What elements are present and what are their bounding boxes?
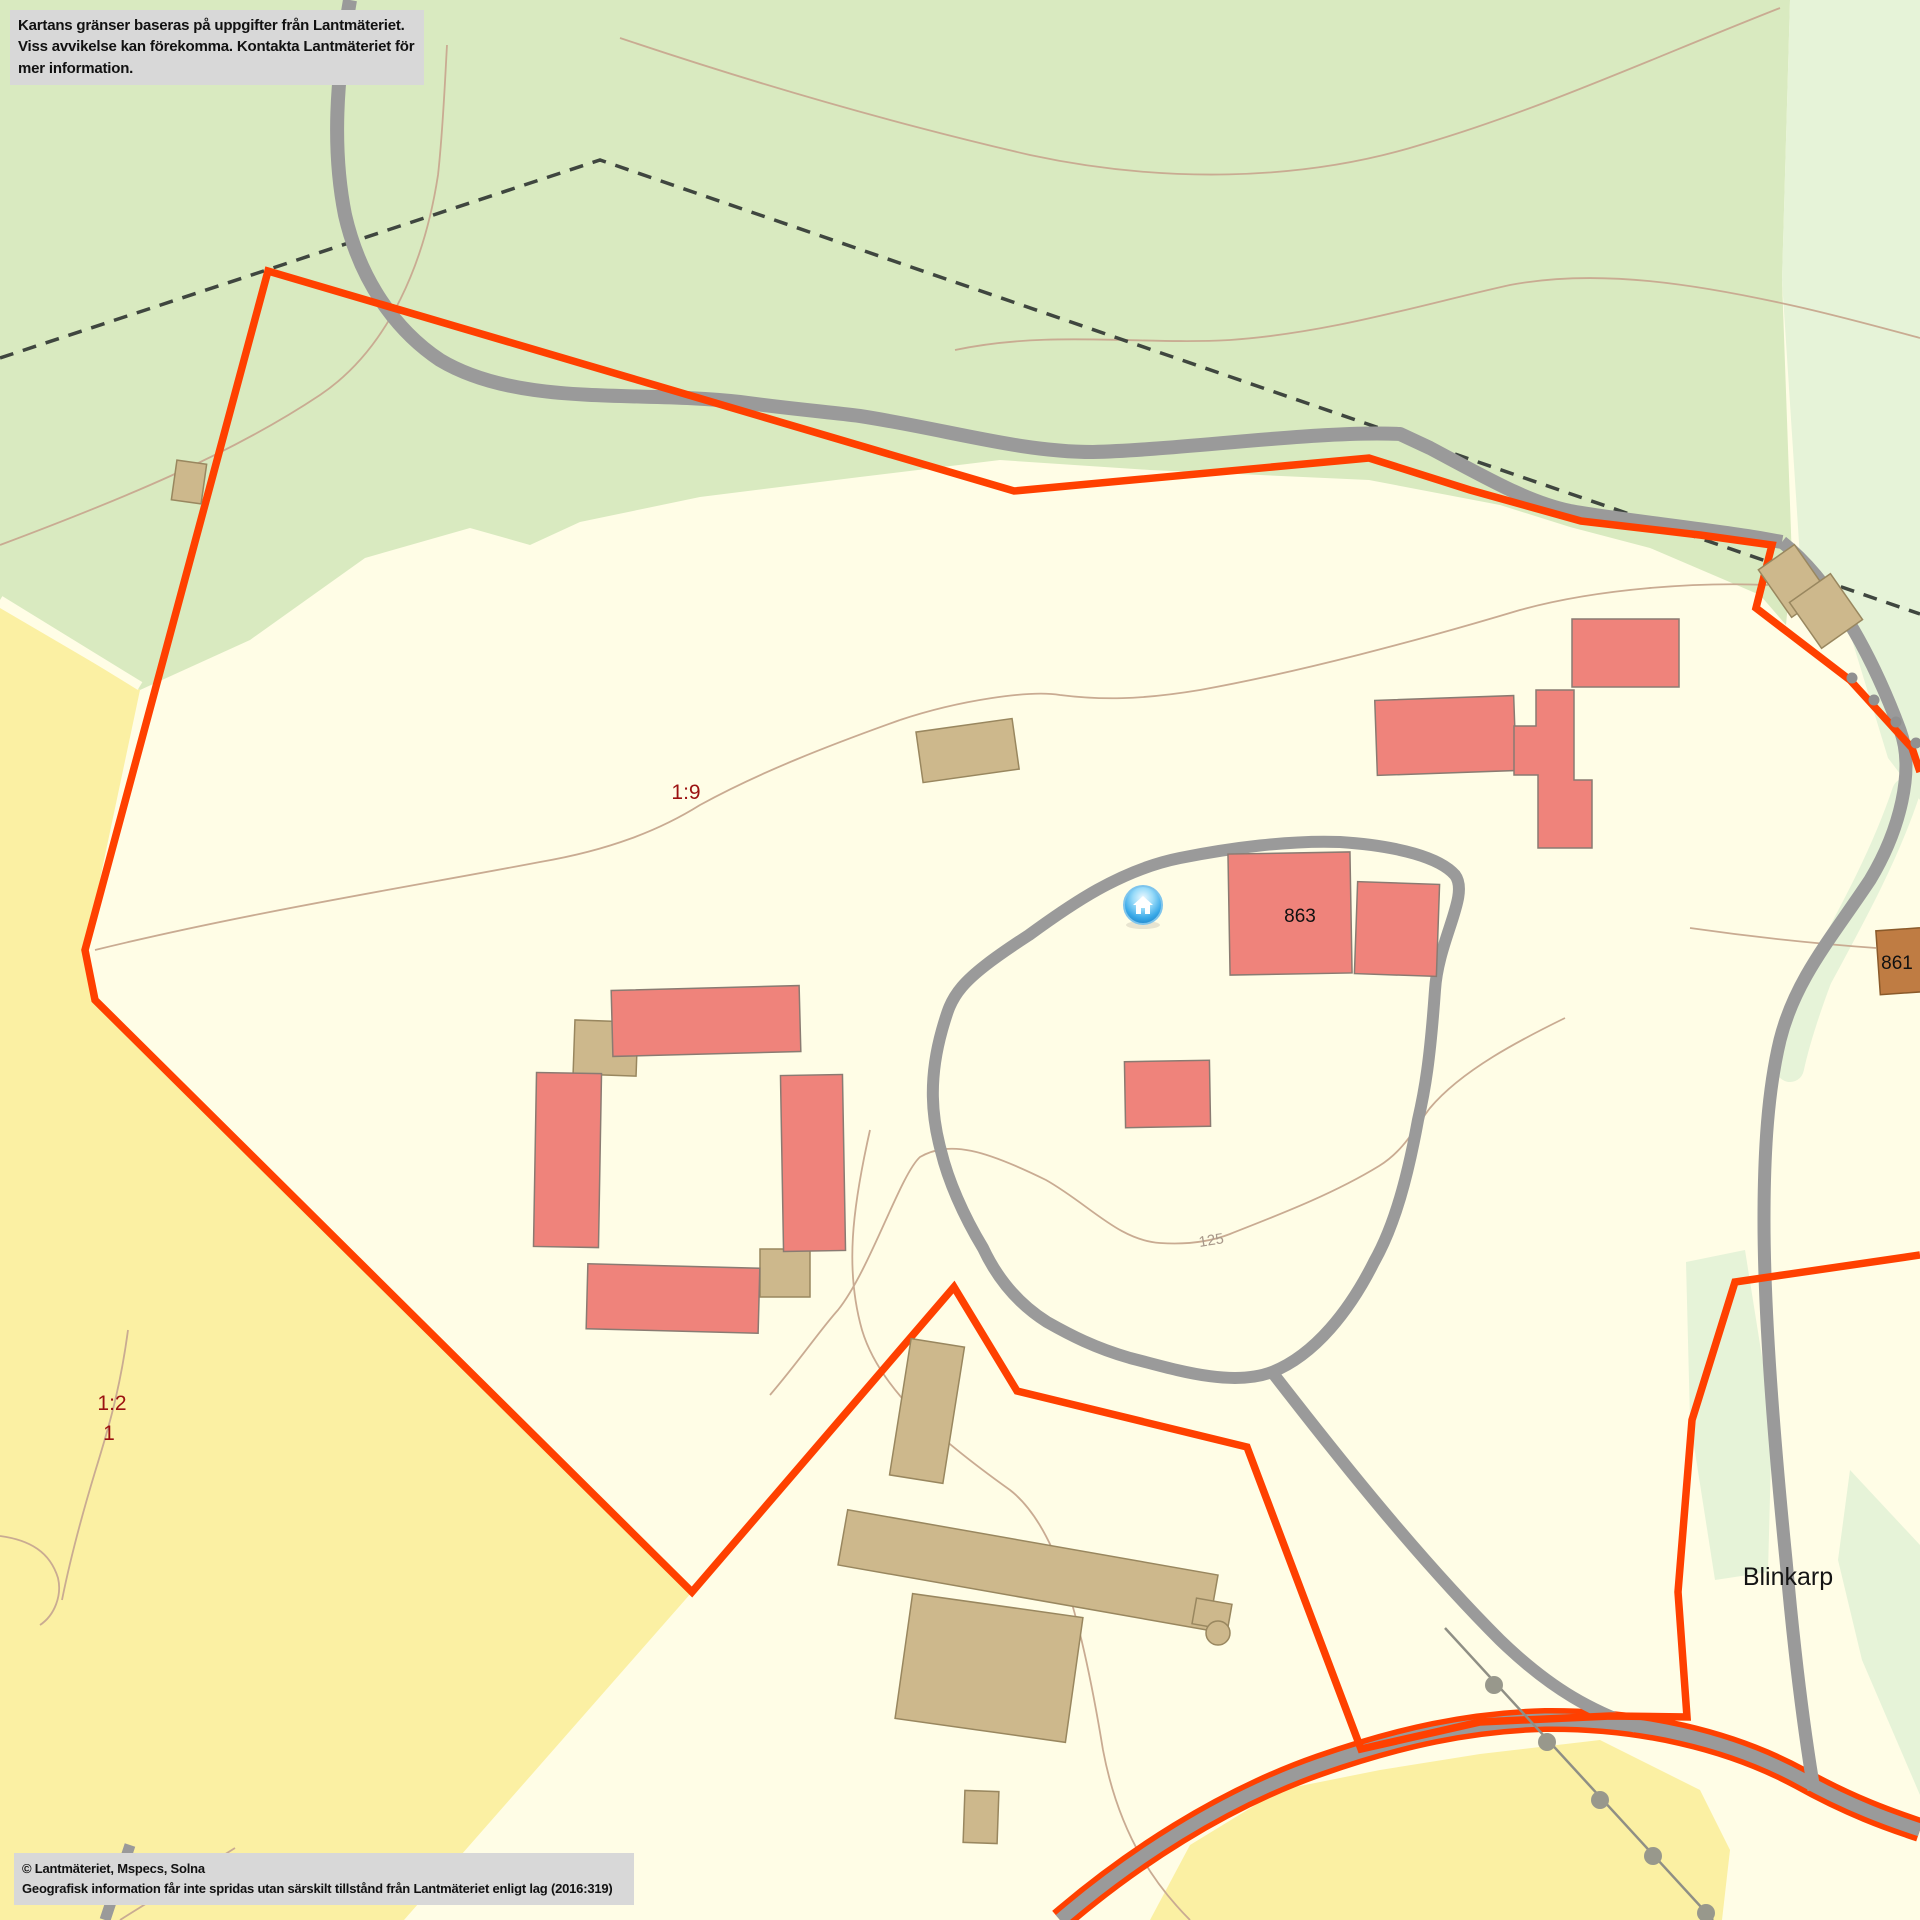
map-canvas[interactable]: 1:91:21863861125Blinkarp <box>0 0 1920 1920</box>
home-marker[interactable] <box>1124 886 1162 929</box>
map-disclaimer-notice: Kartans gränser baseras på uppgifter frå… <box>10 10 424 85</box>
attribution-line-2: Geografisk information får inte spridas … <box>22 1879 626 1899</box>
parcel-1: 1 <box>103 1422 115 1445</box>
parcel-1-2: 1:2 <box>97 1392 126 1415</box>
notice-line-2: Viss avvikelse kan förekomma. Kontakta L… <box>18 36 416 79</box>
parcel-1-9: 1:9 <box>671 781 700 804</box>
building-863: 863 <box>1284 906 1316 927</box>
attribution-line-1: © Lantmäteriet, Mspecs, Solna <box>22 1859 626 1879</box>
map-viewport[interactable]: 1:91:21863861125Blinkarp Kartans gränser… <box>0 0 1920 1920</box>
building-861: 861 <box>1881 953 1913 974</box>
notice-line-1: Kartans gränser baseras på uppgifter frå… <box>18 15 416 36</box>
place-blinkarp: Blinkarp <box>1743 1563 1833 1591</box>
map-attribution: © Lantmäteriet, Mspecs, Solna Geografisk… <box>14 1853 634 1905</box>
